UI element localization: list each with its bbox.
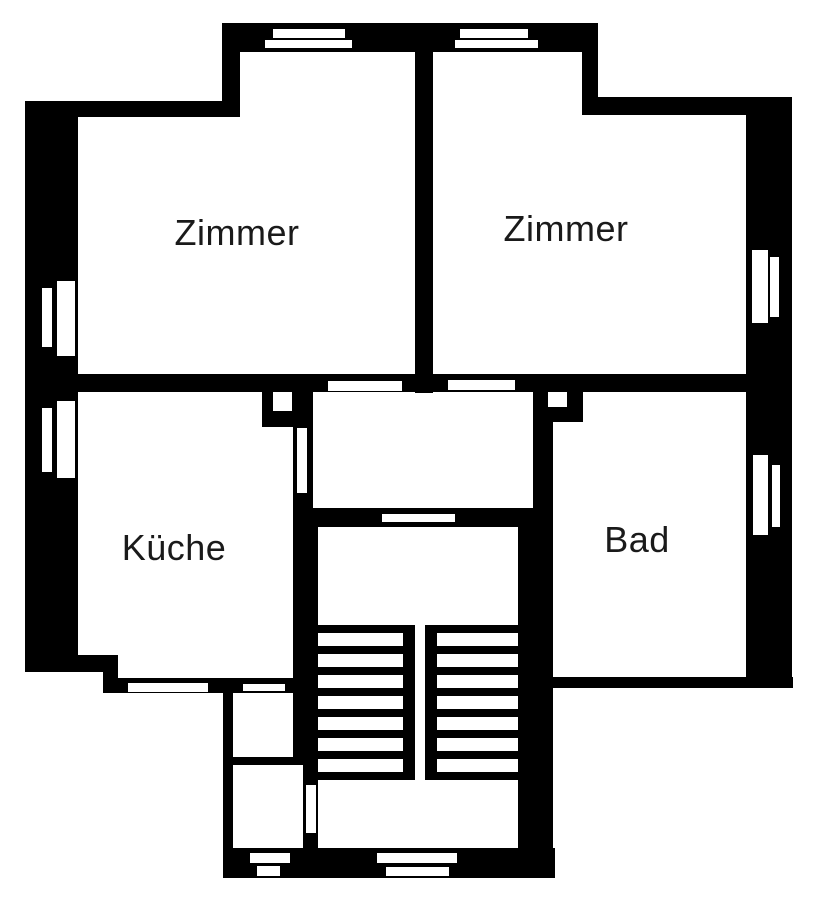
stair-riser-left (318, 709, 403, 717)
window-icon-top-right-inner (455, 40, 538, 48)
room-label-kueche: Küche (122, 527, 227, 569)
door-niche-left (273, 392, 292, 411)
stair-flight-left-bottom-edge (318, 772, 415, 780)
wall-kueche-step-h (25, 655, 118, 672)
door-icon-main-entrance-outer (377, 853, 457, 863)
room-label-bad: Bad (604, 519, 670, 561)
stair-flight-right-bottom-edge (425, 772, 518, 780)
stair-riser-left (318, 751, 403, 759)
wall-stairwell-right (518, 508, 553, 878)
stair-stringer-right (425, 625, 437, 780)
window-icon-left-zimmer-inner (57, 281, 75, 356)
window-icon-left-kueche-inner (57, 401, 75, 478)
window-icon-top-right-outer (460, 29, 528, 38)
wall-vestibule-divider (223, 757, 303, 765)
door-icon-zimmer-right (448, 380, 515, 390)
room-label-zimmer-left: Zimmer (175, 212, 300, 254)
stair-riser-right (437, 667, 518, 675)
door-icon-hallway-stairwell (382, 514, 455, 522)
stair-riser-right (437, 709, 518, 717)
wall-center-zimmer-divider (415, 23, 433, 393)
stair-flight-right-top-edge (425, 625, 518, 633)
stair-riser-left (318, 646, 403, 654)
door-icon-vestibule-stairwell (306, 785, 316, 833)
window-icon-left-zimmer-outer (42, 288, 52, 347)
window-icon-right-bad-inner (753, 455, 768, 535)
door-icon-vestibule-entrance-outer (250, 853, 290, 863)
wall-stairwell-left-upper (293, 508, 318, 765)
room-label-zimmer-right: Zimmer (504, 208, 629, 250)
window-icon-kueche-bottom-outer (128, 683, 208, 692)
stair-riser-left (318, 688, 403, 696)
door-icon-kueche (297, 428, 307, 493)
stair-riser-right (437, 730, 518, 738)
window-icon-top-left-inner (265, 40, 352, 48)
door-icon-zimmer-left (328, 381, 402, 391)
stair-riser-right (437, 751, 518, 759)
wall-right-outer (746, 97, 792, 688)
floorplan-canvas: Zimmer Zimmer Küche Bad (0, 0, 814, 900)
window-icon-top-left-outer (273, 29, 345, 38)
window-icon-left-kueche-outer (42, 408, 52, 472)
door-icon-vestibule-top (243, 684, 285, 691)
stair-flight-left-top-edge (318, 625, 415, 633)
window-icon-right-bad-outer (772, 465, 780, 527)
wall-bad-bottom (518, 677, 793, 688)
door-icon-main-entrance-inner (386, 867, 449, 876)
stair-riser-right (437, 688, 518, 696)
window-icon-right-zimmer-outer (770, 257, 779, 317)
stair-riser-right (437, 646, 518, 654)
stair-stringer-left (403, 625, 415, 780)
door-niche-bad (548, 392, 567, 407)
window-icon-right-zimmer-inner (752, 250, 768, 323)
stair-riser-left (318, 667, 403, 675)
stair-riser-left (318, 730, 403, 738)
door-icon-vestibule-entrance-inner (257, 866, 280, 876)
